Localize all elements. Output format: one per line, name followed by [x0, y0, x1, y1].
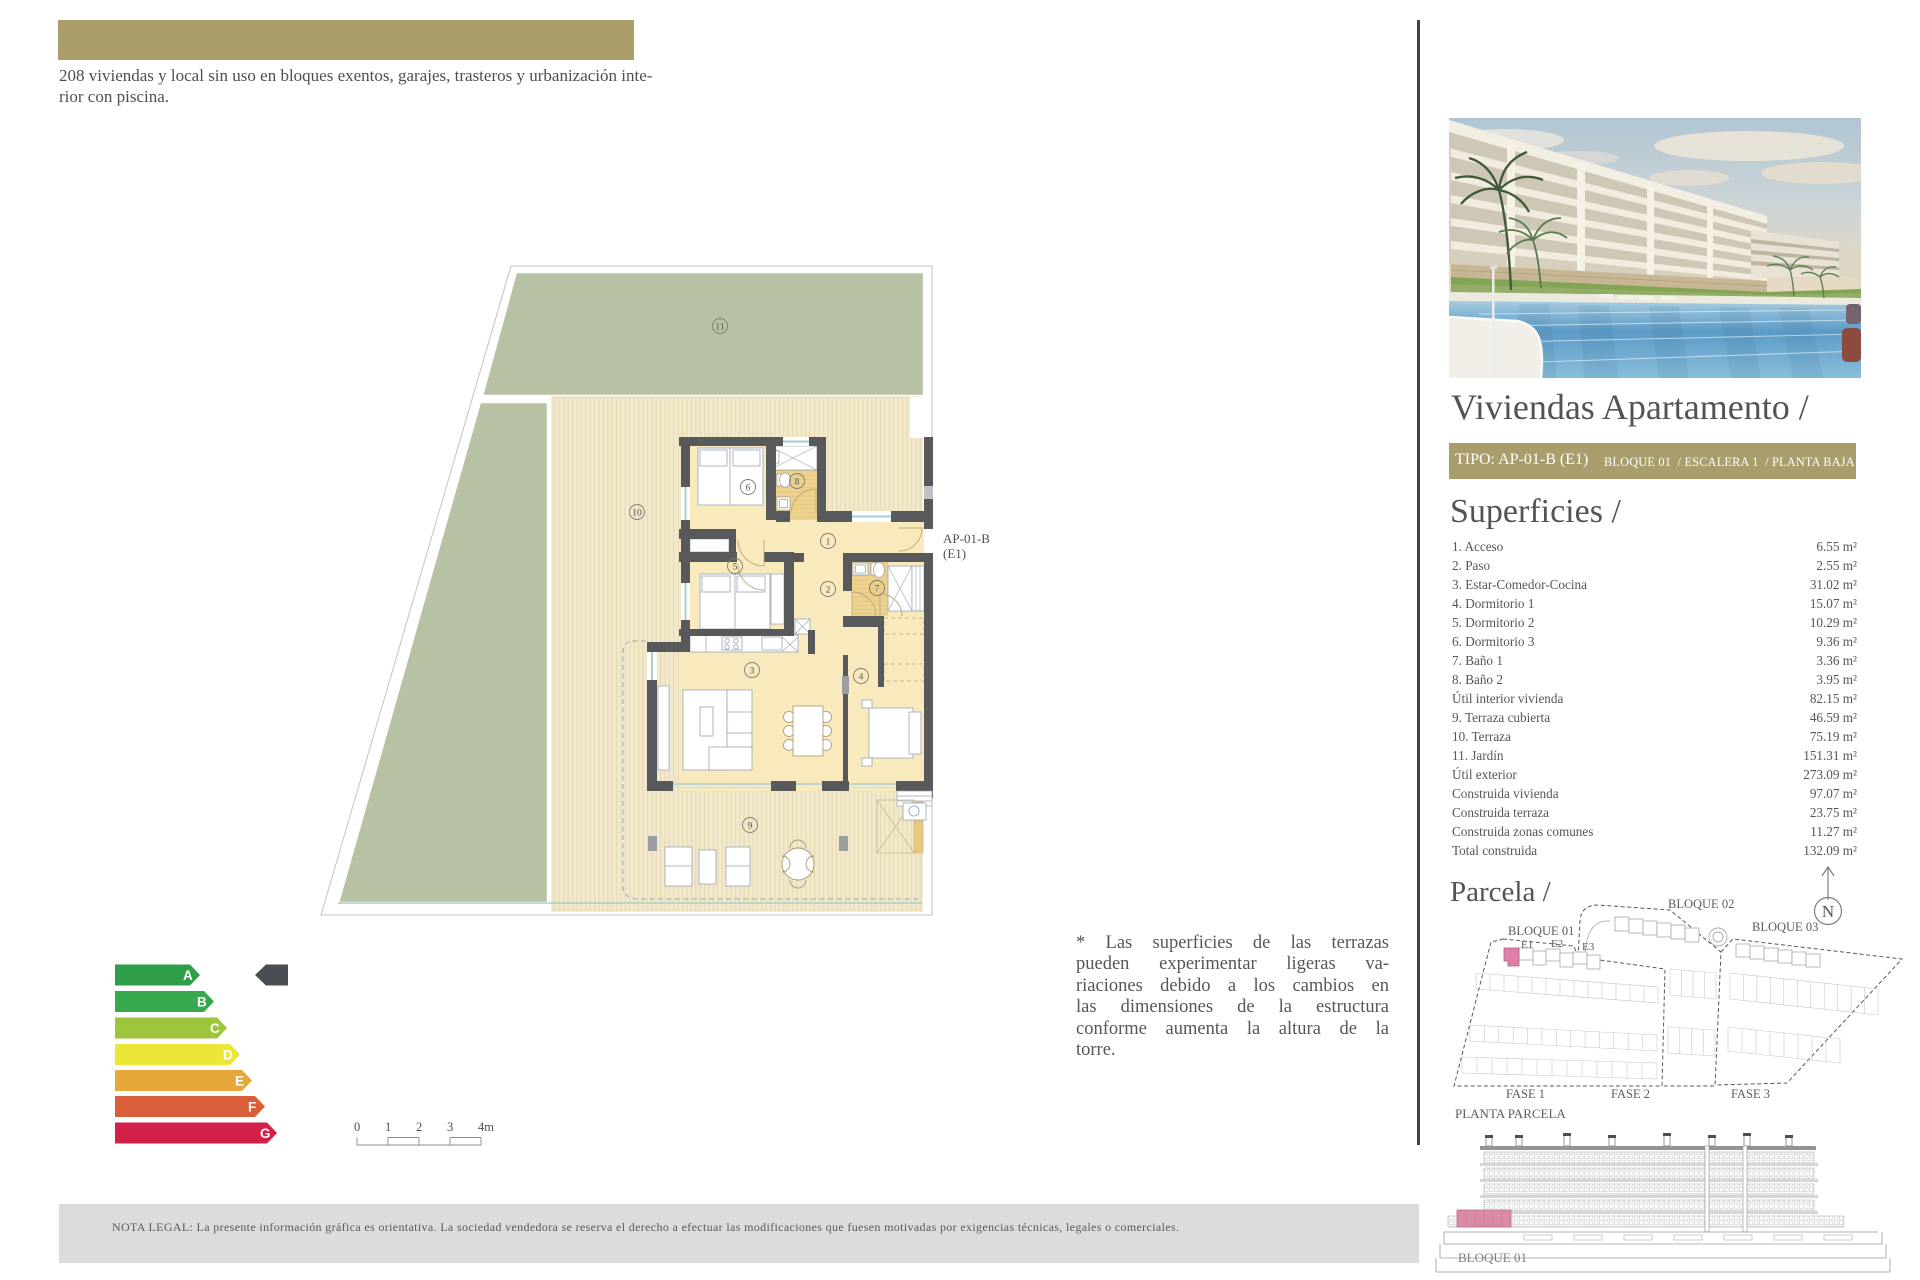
svg-text:E: E	[235, 1074, 244, 1089]
svg-text:A: A	[183, 968, 193, 983]
svg-text:2: 2	[826, 586, 831, 596]
svg-text:BLOQUE 03: BLOQUE 03	[1752, 920, 1818, 934]
svg-text:11: 11	[715, 323, 724, 333]
svg-text:D: D	[223, 1048, 233, 1063]
svg-text:BLOQUE 02: BLOQUE 02	[1668, 897, 1734, 911]
svg-text:G: G	[260, 1126, 271, 1141]
svg-text:10: 10	[632, 509, 642, 519]
svg-text:3: 3	[447, 1120, 453, 1134]
svg-text:FASE 1: FASE 1	[1506, 1087, 1545, 1101]
svg-text:2: 2	[416, 1120, 422, 1134]
svg-text:E1: E1	[1521, 939, 1533, 951]
svg-text:5: 5	[733, 563, 738, 573]
svg-text:C: C	[210, 1021, 220, 1036]
svg-text:E3: E3	[1582, 941, 1595, 953]
svg-text:F: F	[248, 1100, 256, 1115]
svg-text:BLOQUE 01: BLOQUE 01	[1458, 1250, 1527, 1265]
svg-text:3: 3	[750, 667, 755, 677]
svg-text:FASE 3: FASE 3	[1731, 1087, 1770, 1101]
svg-text:9: 9	[748, 822, 753, 832]
svg-text:1: 1	[826, 538, 831, 548]
svg-text:(E1): (E1)	[943, 546, 966, 561]
svg-text:B: B	[197, 995, 207, 1010]
svg-text:E2: E2	[1551, 938, 1563, 950]
svg-text:4m: 4m	[478, 1120, 494, 1134]
svg-text:8: 8	[795, 478, 800, 488]
svg-text:AP-01-B: AP-01-B	[943, 531, 990, 546]
svg-text:FASE 2: FASE 2	[1611, 1087, 1650, 1101]
svg-text:7: 7	[875, 585, 880, 595]
svg-text:1: 1	[385, 1120, 391, 1134]
svg-text:BLOQUE 01: BLOQUE 01	[1508, 924, 1574, 938]
svg-text:4: 4	[859, 673, 864, 683]
svg-text:0: 0	[354, 1120, 360, 1134]
svg-text:6: 6	[746, 484, 751, 494]
